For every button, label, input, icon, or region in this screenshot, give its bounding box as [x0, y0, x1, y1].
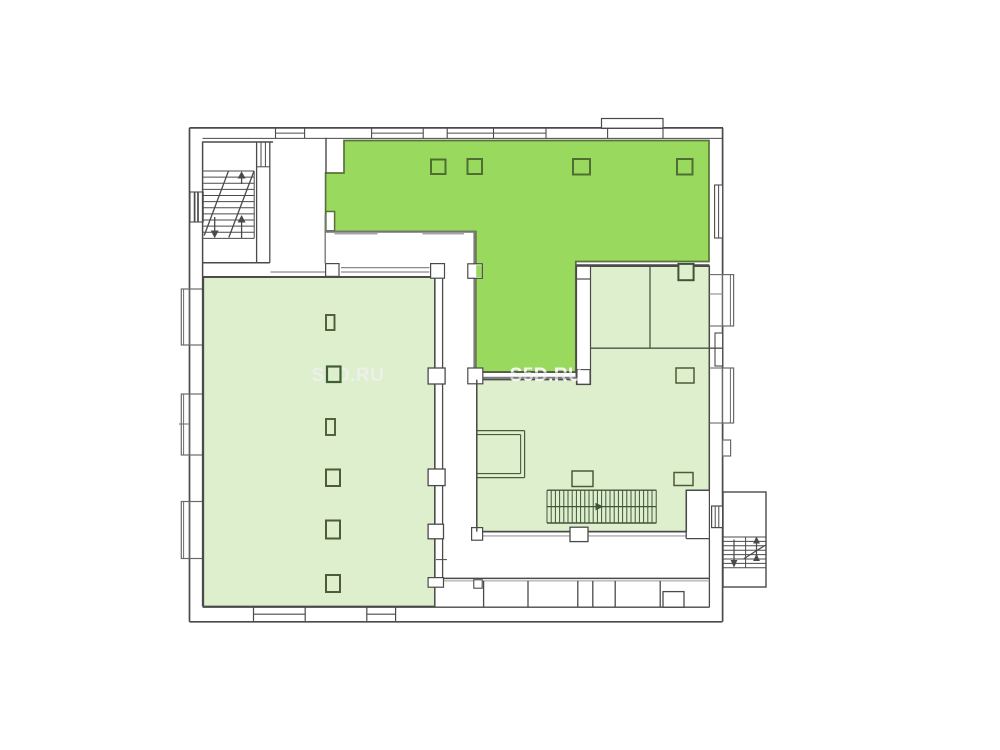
svg-text:S5D.RU: S5D.RU: [510, 365, 583, 386]
svg-text:S5D.RU: S5D.RU: [312, 365, 385, 386]
